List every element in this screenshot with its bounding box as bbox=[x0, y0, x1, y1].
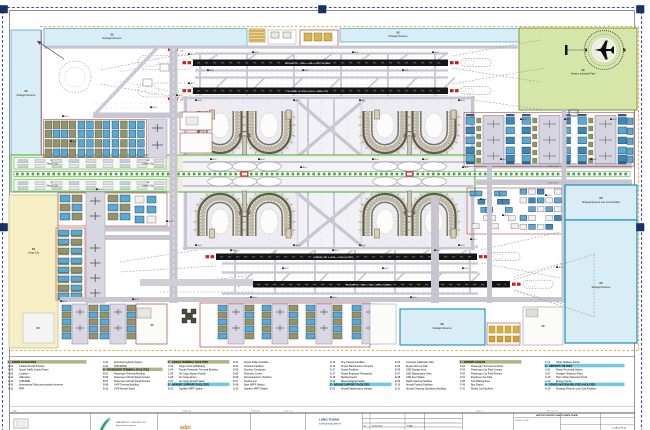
svg-text:Strategic Reserve: Strategic Reserve bbox=[388, 35, 408, 38]
svg-text:D-06: D-06 bbox=[233, 376, 239, 379]
svg-text:B-06: B-06 bbox=[593, 159, 597, 161]
svg-text:A-05: A-05 bbox=[179, 94, 183, 97]
svg-text:G - AIRPORT UTILITIES: G - AIRPORT UTILITIES bbox=[545, 365, 573, 368]
svg-text:Decompression Chamber: Decompression Chamber bbox=[244, 376, 272, 379]
svg-text:PH-RV | M: PH-RV | M bbox=[251, 411, 260, 413]
svg-text:Air Cargo Agents Facility: Air Cargo Agents Facility bbox=[179, 372, 206, 375]
svg-text:A-01: A-01 bbox=[473, 238, 477, 241]
svg-text:A-00: A-00 bbox=[333, 296, 337, 299]
svg-text:A-09: A-09 bbox=[505, 214, 509, 217]
svg-text:F-03: F-03 bbox=[460, 365, 466, 368]
svg-text:A-06: A-06 bbox=[233, 249, 237, 252]
svg-text:H - OTHER AVIATION RELATED FAC: H - OTHER AVIATION RELATED FACILITIES bbox=[545, 384, 596, 387]
svg-text:Aircraft Fueling Facilities: Aircraft Fueling Facilities bbox=[406, 384, 433, 387]
svg-text:Strategic Reserve Low Cost Fac: Strategic Reserve Low Cost Facilities bbox=[556, 387, 597, 390]
svg-text:GSE Fuel Station: GSE Fuel Station bbox=[406, 376, 425, 379]
svg-text:D-18: D-18 bbox=[330, 376, 336, 379]
svg-text:B-02: B-02 bbox=[548, 195, 552, 197]
svg-text:E-11: E-11 bbox=[395, 387, 401, 390]
svg-text:A-19: A-19 bbox=[8, 387, 14, 390]
svg-text:XXXXX XXXX: XXXXX XXXX bbox=[547, 182, 559, 184]
svg-text:B-05: B-05 bbox=[213, 159, 217, 161]
svg-text:A-16: A-16 bbox=[8, 384, 14, 387]
svg-text:B-03: B-03 bbox=[255, 52, 259, 54]
svg-text:Security Checkpoint: Security Checkpoint bbox=[244, 369, 266, 372]
svg-text:Passenger Car Park Remote: Passenger Car Park Remote bbox=[471, 372, 503, 375]
svg-text:D-17: D-17 bbox=[330, 369, 336, 372]
svg-text:B-01: B-01 bbox=[103, 372, 109, 375]
svg-text:A-05: A-05 bbox=[303, 166, 307, 169]
svg-text:Airport Facilities: Airport Facilities bbox=[341, 369, 359, 372]
svg-text:Main ARFF Station: Main ARFF Station bbox=[244, 384, 265, 387]
svg-text:E-08: E-08 bbox=[395, 376, 401, 379]
svg-text:A-08: A-08 bbox=[483, 198, 487, 201]
svg-text:E-10: E-10 bbox=[395, 384, 401, 387]
svg-text:A-03: A-03 bbox=[135, 298, 139, 301]
svg-text:C-01: C-01 bbox=[168, 365, 174, 368]
svg-text:Passenger Car Park Contact: Passenger Car Park Contact bbox=[471, 369, 502, 372]
svg-text:Glideslope: Glideslope bbox=[19, 376, 31, 379]
svg-text:1-LTAU-PTD-00: 1-LTAU-PTD-00 bbox=[612, 427, 627, 430]
svg-text:B-01: B-01 bbox=[461, 245, 465, 247]
svg-text:G-01: G-01 bbox=[545, 369, 551, 372]
svg-text:Sheet | 1 of 1: Sheet | 1 of 1 bbox=[547, 410, 558, 413]
svg-text:Passenger Terminal Curbside: Passenger Terminal Curbside bbox=[471, 365, 504, 368]
svg-text:A-01: A-01 bbox=[191, 82, 195, 85]
svg-text:E-01: E-01 bbox=[330, 387, 336, 390]
svg-text:D-08: D-08 bbox=[233, 384, 239, 387]
svg-text:D-01: D-01 bbox=[233, 361, 239, 364]
svg-text:Strategic Reserve: Strategic Reserve bbox=[591, 286, 611, 289]
svg-text:C-06: C-06 bbox=[168, 376, 174, 379]
svg-text:FINAL: FINAL bbox=[407, 424, 414, 427]
svg-text:E-05: E-05 bbox=[395, 365, 401, 368]
svg-text:Meteorological Facility: Meteorological Facility bbox=[341, 380, 366, 383]
svg-text:G-19: G-19 bbox=[545, 380, 551, 383]
svg-text:XX: XX bbox=[32, 248, 36, 251]
svg-text:A-10: A-10 bbox=[8, 376, 14, 379]
svg-text:A-07: A-07 bbox=[435, 51, 439, 54]
svg-text:E-06: E-06 bbox=[395, 369, 401, 372]
svg-text:D-16: D-16 bbox=[330, 365, 336, 368]
svg-text:D-03: D-03 bbox=[233, 369, 239, 372]
svg-text:A-24: A-24 bbox=[103, 365, 109, 368]
svg-text:Airport Police Facilities: Airport Police Facilities bbox=[244, 361, 269, 364]
svg-text:D-17: D-17 bbox=[330, 372, 336, 375]
svg-text:E-09: E-09 bbox=[395, 380, 401, 383]
svg-text:Strategic Reserve: Strategic Reserve bbox=[102, 37, 122, 40]
svg-text:XX: XX bbox=[599, 197, 603, 200]
svg-text:B-03: B-03 bbox=[153, 107, 157, 109]
svg-text:A-03: A-03 bbox=[73, 140, 77, 143]
svg-text:B-00: B-00 bbox=[63, 301, 67, 303]
svg-text:Satellite ARFF Station: Satellite ARFF Station bbox=[244, 387, 268, 390]
svg-text:XXXXX XXXX: XXXXX XXXX bbox=[547, 166, 559, 168]
svg-text:LONG THANH: LONG THANH bbox=[319, 418, 339, 422]
svg-text:adpi: adpi bbox=[180, 425, 191, 430]
svg-text:B-01: B-01 bbox=[375, 159, 379, 161]
svg-text:30.06.2010: 30.06.2010 bbox=[372, 425, 383, 427]
svg-text:G-15: G-15 bbox=[545, 376, 551, 379]
svg-text:H-19: H-19 bbox=[545, 387, 551, 390]
svg-text:Cargo Terminal Building: Cargo Terminal Building bbox=[179, 365, 205, 368]
svg-text:Air Cargo Apron: Air Cargo Apron bbox=[179, 376, 197, 379]
svg-text:C - CARGO TERMINAL FACILITIES: C - CARGO TERMINAL FACILITIES bbox=[168, 361, 208, 364]
svg-text:B-06: B-06 bbox=[103, 376, 109, 379]
svg-text:A-08: A-08 bbox=[465, 166, 469, 169]
svg-text:Dog/Kennel: Dog/Kennel bbox=[244, 380, 257, 383]
svg-text:A-07: A-07 bbox=[285, 267, 289, 270]
svg-text:Airport Traffic Control Tower: Airport Traffic Control Tower bbox=[19, 369, 49, 372]
svg-text:Strategic Reserve Low Cost Fac: Strategic Reserve Low Cost Facilities bbox=[582, 201, 621, 204]
svg-text:A-07: A-07 bbox=[503, 158, 507, 161]
svg-text:VVIP Terminal Building: VVIP Terminal Building bbox=[114, 384, 139, 387]
svg-text:B-06: B-06 bbox=[405, 70, 409, 72]
svg-text:F-07: F-07 bbox=[460, 376, 466, 379]
svg-text:Localizer: Localizer bbox=[19, 372, 29, 375]
svg-text:F-10: F-10 bbox=[460, 387, 466, 390]
svg-text:GSE Maintenance Area: GSE Maintenance Area bbox=[406, 372, 432, 375]
svg-text:Bus Station: Bus Station bbox=[471, 384, 484, 387]
svg-text:XX: XX bbox=[24, 90, 28, 93]
svg-text:Airport Maintenance Complex: Airport Maintenance Complex bbox=[341, 365, 374, 368]
svg-text:F-12: F-12 bbox=[545, 361, 551, 364]
svg-text:Compass Calibration Pad: Compass Calibration Pad bbox=[406, 361, 434, 364]
svg-text:XX: XX bbox=[440, 323, 444, 326]
svg-text:D-02: D-02 bbox=[233, 365, 239, 368]
svg-text:A-06: A-06 bbox=[99, 188, 103, 191]
svg-text:Airports de Paris Ingenierie: Airports de Paris Ingenierie bbox=[116, 424, 136, 427]
svg-text:A-14: A-14 bbox=[8, 380, 14, 383]
svg-text:A-08: A-08 bbox=[198, 99, 202, 102]
svg-text:B-00: B-00 bbox=[465, 268, 469, 270]
svg-text:Freight Forwarder Terminal Bui: Freight Forwarder Terminal Building bbox=[179, 369, 218, 372]
svg-text:VVIP Aircraft Stand: VVIP Aircraft Stand bbox=[114, 387, 135, 390]
svg-text:B-04: B-04 bbox=[253, 297, 257, 299]
svg-text:A-00: A-00 bbox=[362, 99, 366, 102]
svg-text:A-02: A-02 bbox=[210, 69, 214, 72]
svg-text:XX: XX bbox=[150, 325, 154, 327]
svg-text:A-02: A-02 bbox=[8, 365, 14, 368]
svg-text:INTERNATIONAL AIRPORT: INTERNATIONAL AIRPORT bbox=[319, 423, 342, 426]
svg-text:A-03: A-03 bbox=[296, 244, 300, 247]
svg-text:Employee Car Park: Employee Car Park bbox=[471, 376, 493, 379]
svg-text:Scale | n.a.: Scale | n.a. bbox=[284, 411, 293, 413]
svg-text:G-07: G-07 bbox=[545, 372, 551, 375]
svg-text:A-06: A-06 bbox=[613, 118, 617, 121]
svg-text:Satellite ARFF Station: Satellite ARFF Station bbox=[179, 387, 203, 390]
svg-text:B - PASSENGER TERMINAL FACILIT: B - PASSENGER TERMINAL FACILITIES bbox=[103, 369, 149, 372]
svg-text:A-04: A-04 bbox=[305, 69, 309, 72]
svg-text:Engine Run-up Pad: Engine Run-up Pad bbox=[406, 365, 428, 368]
svg-text:Urban Railway Station: Urban Railway Station bbox=[556, 361, 581, 364]
svg-text:XX: XX bbox=[36, 327, 40, 330]
svg-text:Airport Employee Restaurant: Airport Employee Restaurant bbox=[341, 372, 373, 375]
svg-text:C-05: C-05 bbox=[168, 372, 174, 375]
svg-text:B-02: B-02 bbox=[296, 100, 300, 102]
svg-text:A-05: A-05 bbox=[355, 51, 359, 54]
svg-text:B-03: B-03 bbox=[567, 119, 571, 121]
svg-text:A-04: A-04 bbox=[362, 244, 366, 247]
svg-text:Aircraft Cleaning Operations B: Aircraft Cleaning Operations Building bbox=[406, 387, 447, 390]
svg-text:Taxi Waiting Area: Taxi Waiting Area bbox=[471, 380, 490, 383]
svg-text:JAPAN AIRPORT CONSULTANTS, INC: JAPAN AIRPORT CONSULTANTS, INC. bbox=[116, 421, 147, 424]
svg-text:F-08: F-08 bbox=[460, 380, 466, 383]
svg-text:A-20: A-20 bbox=[103, 361, 109, 364]
svg-text:AIRPORT MASTER PLAN ULTIMATE P: AIRPORT MASTER PLAN ULTIMATE PHASE bbox=[536, 414, 578, 417]
svg-text:A-02: A-02 bbox=[65, 115, 69, 118]
svg-text:Cargo City: Cargo City bbox=[28, 252, 40, 255]
svg-text:A-09: A-09 bbox=[385, 267, 389, 270]
svg-text:Aviation Industrial Park: Aviation Industrial Park bbox=[571, 73, 596, 76]
svg-text:SCALE 1:25 000: SCALE 1:25 000 bbox=[515, 419, 528, 422]
svg-text:RUNWAY 1A : 4 000 m x 60 m (09: RUNWAY 1A : 4 000 m x 60 m (09R-27L) bbox=[288, 90, 328, 93]
svg-text:Dwg. ref: Dwg. ref bbox=[476, 411, 483, 413]
svg-text:A-09: A-09 bbox=[8, 372, 14, 375]
svg-text:Energy Center: Energy Center bbox=[556, 380, 572, 383]
svg-text:A-04: A-04 bbox=[261, 158, 265, 161]
svg-text:Isolated Aircraft Position: Isolated Aircraft Position bbox=[19, 365, 45, 368]
svg-text:Customs Facilities: Customs Facilities bbox=[244, 365, 265, 368]
svg-text:A-06: A-06 bbox=[8, 369, 14, 372]
svg-text:Sewage Treatment Plant: Sewage Treatment Plant bbox=[556, 372, 583, 375]
svg-text:Rental Car Facilities: Rental Car Facilities bbox=[471, 387, 494, 390]
svg-text:A-01: A-01 bbox=[413, 296, 417, 299]
svg-text:Aircraft Maintenance Hangar: Aircraft Maintenance Hangar bbox=[341, 387, 372, 390]
svg-text:Strategic Reserve: Strategic Reserve bbox=[16, 94, 36, 97]
svg-text:E-01: E-01 bbox=[168, 387, 174, 390]
svg-text:B-10: B-10 bbox=[103, 387, 109, 390]
svg-text:C-07: C-07 bbox=[168, 380, 174, 383]
svg-text:E - AIRPORT SUPPORT FACILITIES: E - AIRPORT SUPPORT FACILITIES bbox=[168, 384, 209, 387]
svg-text:A - AIRFIELD FACILITIES: A - AIRFIELD FACILITIES bbox=[8, 361, 37, 364]
svg-text:A-01: A-01 bbox=[461, 99, 465, 102]
svg-text:RUNWAY 2B : 4 000 m x 60 m (09: RUNWAY 2B : 4 000 m x 60 m (09R-27L) A38… bbox=[346, 283, 392, 286]
svg-text:Detention Center: Detention Center bbox=[244, 372, 263, 375]
svg-text:Strategic Reserve: Strategic Reserve bbox=[432, 327, 452, 330]
svg-text:D-07: D-07 bbox=[233, 380, 239, 383]
svg-text:D-19: D-19 bbox=[330, 380, 336, 383]
svg-text:B-05: B-05 bbox=[198, 245, 202, 247]
svg-text:Medical Center: Medical Center bbox=[341, 376, 358, 379]
svg-text:E - AIRLINE SUPPORT FACILITIES: E - AIRLINE SUPPORT FACILITIES bbox=[330, 384, 370, 387]
svg-text:RUNWAY 1B : 4 000 m x 60 m (09: RUNWAY 1B : 4 000 m x 60 m (09L-27R) A38… bbox=[285, 62, 331, 65]
svg-text:RUNWAY 2A : 4 000 m x 60 m (09: RUNWAY 2A : 4 000 m x 60 m (09L-27R) bbox=[313, 256, 353, 259]
svg-text:A-02: A-02 bbox=[559, 266, 563, 269]
svg-text:A-07: A-07 bbox=[425, 158, 429, 161]
svg-text:XX: XX bbox=[599, 282, 603, 285]
svg-text:Aeronautical Telecommunication: Aeronautical Telecommunication Antenna bbox=[19, 384, 63, 387]
svg-text:Fire Training Facilities: Fire Training Facilities bbox=[341, 361, 365, 364]
svg-text:A-00: A-00 bbox=[437, 249, 441, 252]
svg-text:F-04: F-04 bbox=[460, 369, 466, 372]
svg-text:Power Receiving Station: Power Receiving Station bbox=[556, 369, 583, 372]
svg-text:PSR/MSSR: PSR/MSSR bbox=[114, 365, 127, 368]
svg-text:LT-A2: LT-A2 bbox=[12, 410, 17, 413]
svg-text:F-05: F-05 bbox=[460, 372, 466, 375]
svg-text:GSE Storage Area: GSE Storage Area bbox=[406, 369, 427, 372]
svg-text:D-05: D-05 bbox=[233, 372, 239, 375]
svg-text:Approach Lighting System: Approach Lighting System bbox=[114, 361, 142, 364]
svg-text:B-08: B-08 bbox=[103, 384, 109, 387]
svg-text:Air Cargo Aircraft Stand: Air Cargo Aircraft Stand bbox=[179, 380, 205, 383]
svg-text:LT-ALL-DW: LT-ALL-DW bbox=[182, 410, 192, 413]
svg-text:D-14: D-14 bbox=[330, 361, 336, 364]
svg-text:Storm Water Detention Pond: Storm Water Detention Pond bbox=[556, 376, 588, 379]
svg-text:B-00: B-00 bbox=[191, 54, 195, 56]
svg-text:C-04: C-04 bbox=[168, 369, 174, 372]
svg-text:B-06: B-06 bbox=[169, 221, 173, 223]
svg-text:Passenger Aircraft Stand Remot: Passenger Aircraft Stand Remote bbox=[114, 380, 151, 383]
svg-text:Passenger Terminal Building: Passenger Terminal Building bbox=[114, 372, 145, 375]
svg-text:E-04: E-04 bbox=[395, 361, 401, 364]
svg-text:F - AIRPORT ACCESS: F - AIRPORT ACCESS bbox=[460, 361, 486, 364]
svg-text:XX: XX bbox=[541, 326, 545, 328]
svg-text:F-09: F-09 bbox=[460, 384, 466, 387]
svg-text:D-10: D-10 bbox=[233, 387, 239, 390]
svg-text:VOR/DME: VOR/DME bbox=[19, 380, 31, 383]
svg-text:Flight Catering Facilities: Flight Catering Facilities bbox=[406, 380, 433, 383]
svg-text:Passenger Aircraft Stand Conta: Passenger Aircraft Stand Contact bbox=[114, 376, 150, 379]
svg-text:E-07: E-07 bbox=[395, 372, 401, 375]
svg-text:B-04: B-04 bbox=[335, 250, 339, 252]
svg-text:A-04: A-04 bbox=[523, 118, 527, 121]
svg-text:PAPI: PAPI bbox=[19, 387, 25, 390]
svg-text:B-07: B-07 bbox=[103, 380, 109, 383]
